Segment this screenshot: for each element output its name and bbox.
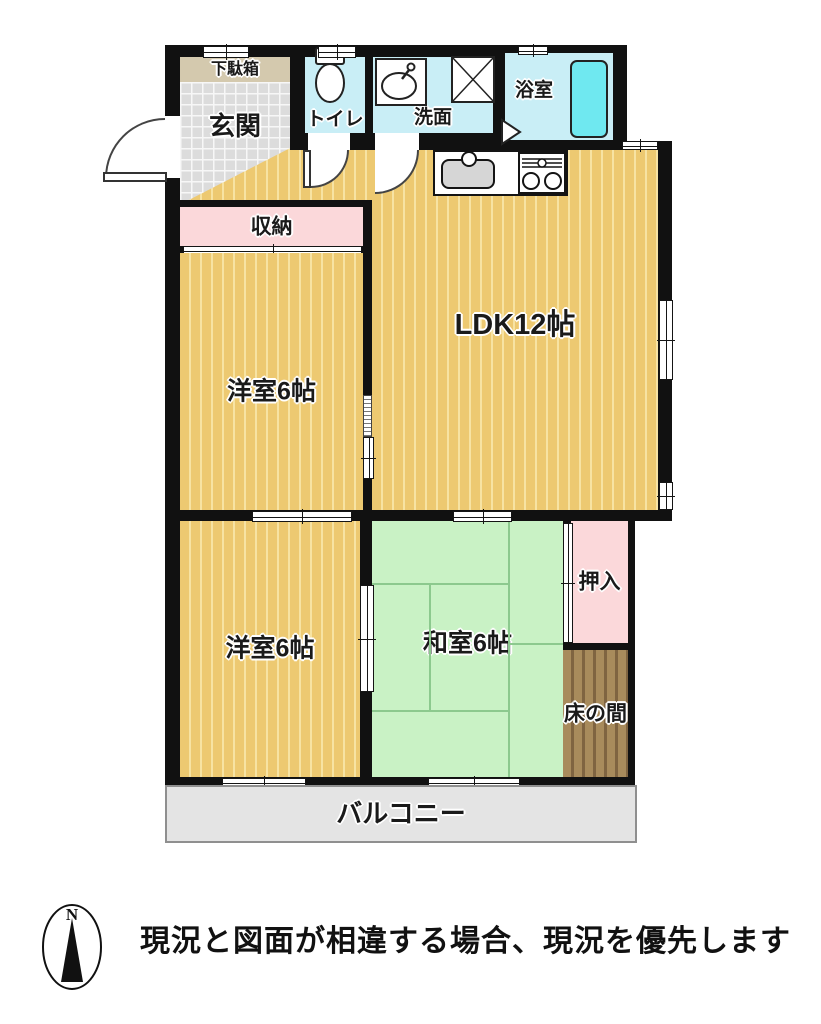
tokonoma-label: 床の間 bbox=[564, 702, 627, 725]
ldk-japanese-sliding-door bbox=[453, 511, 512, 522]
exterior-cutout-top-right bbox=[627, 45, 672, 141]
tatami-line bbox=[372, 710, 510, 712]
floorplan-canvas: 玄関 下駄箱 トイレ 洗面 浴室 LDK12帖 bbox=[0, 0, 821, 1024]
western-rooms-sliding-door bbox=[252, 511, 352, 522]
room-storage: 収納 bbox=[180, 207, 363, 246]
western-upper-ldk-door bbox=[363, 395, 372, 437]
window-top-entrance bbox=[203, 46, 249, 58]
western-lower-label: 洋室6帖 bbox=[226, 635, 315, 663]
window-top-bathroom bbox=[518, 46, 548, 55]
stove-icon bbox=[518, 152, 566, 194]
western-upper-label: 洋室6帖 bbox=[227, 378, 316, 406]
balcony-label: バルコニー bbox=[336, 800, 465, 829]
room-western-lower: 洋室6帖 bbox=[180, 521, 360, 777]
window-ldk-top-right bbox=[622, 141, 658, 150]
washroom-label: 洗面 bbox=[414, 108, 452, 129]
bathtub-icon bbox=[570, 60, 608, 138]
window-top-toilet bbox=[318, 46, 356, 58]
bathroom-label: 浴室 bbox=[515, 81, 553, 102]
room-shoe-cabinet: 下駄箱 bbox=[180, 57, 290, 82]
disclaimer-text: 現況と図面が相違する場合、現況を優先します bbox=[140, 916, 791, 960]
tatami-line bbox=[372, 583, 510, 585]
closet-sliding-door bbox=[563, 523, 573, 643]
kitchen-faucet-icon bbox=[461, 151, 477, 167]
tatami-line bbox=[508, 643, 563, 645]
window-ldk-right-small bbox=[659, 482, 673, 510]
compass-icon: N bbox=[40, 894, 104, 992]
room-tokonoma: 床の間 bbox=[563, 650, 628, 777]
room-western-upper: 洋室6帖 bbox=[180, 253, 363, 510]
room-ldk: LDK12帖 bbox=[372, 150, 658, 510]
room-japanese: 和室6帖 bbox=[372, 521, 563, 777]
tatami-line bbox=[429, 583, 431, 712]
bathroom-door-icon bbox=[500, 118, 522, 146]
tatami-line bbox=[508, 521, 510, 777]
shoe-cabinet-label: 下駄箱 bbox=[211, 61, 259, 79]
japanese-room-label: 和室6帖 bbox=[423, 630, 512, 658]
toilet-door-leaf bbox=[303, 150, 311, 188]
window-ldk-right bbox=[659, 300, 673, 380]
washbasin-icon bbox=[375, 58, 427, 106]
washroom-door-opening bbox=[375, 133, 419, 150]
western-upper-ldk-door-lower bbox=[363, 437, 374, 479]
balcony: バルコニー bbox=[165, 785, 637, 843]
entrance-door-opening bbox=[165, 116, 180, 178]
closet-label: 押入 bbox=[579, 570, 621, 593]
western-japanese-sliding-door bbox=[360, 585, 374, 692]
entrance-door-leaf bbox=[103, 172, 167, 182]
room-closet: 押入 bbox=[571, 521, 628, 643]
entrance-door-arc bbox=[105, 118, 165, 178]
toilet-door-opening bbox=[308, 133, 350, 150]
ldk-label: LDK12帖 bbox=[455, 310, 576, 342]
washing-machine-pan-icon bbox=[451, 56, 495, 103]
toilet-label: トイレ bbox=[306, 110, 363, 131]
entrance-label: 玄関 bbox=[209, 112, 261, 141]
storage-label: 収納 bbox=[251, 215, 293, 238]
exterior-cutout-bottom-right bbox=[635, 521, 672, 785]
